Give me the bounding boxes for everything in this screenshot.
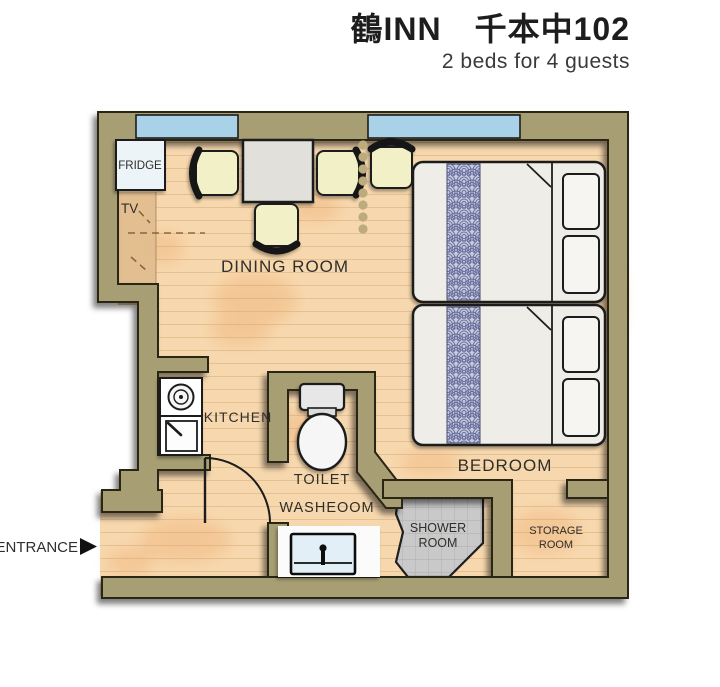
chair-bottom bbox=[255, 204, 298, 251]
chair-right bbox=[317, 150, 363, 195]
kitchen-label: KITCHEN bbox=[204, 409, 272, 425]
tv-label: TV bbox=[121, 201, 138, 216]
bedroom-label: BEDROOM bbox=[458, 456, 553, 475]
washroom-label: WASHEOOM bbox=[279, 500, 374, 516]
stove-burner bbox=[169, 385, 194, 410]
kitchen-counter bbox=[160, 378, 202, 455]
entrance-label: ENTRANCE bbox=[0, 539, 78, 556]
bed-2-pillow-bottom bbox=[563, 379, 599, 436]
window-dining bbox=[136, 115, 238, 138]
dining-room-label: DINING ROOM bbox=[221, 257, 349, 276]
shower-room-label-line1: SHOWER bbox=[410, 521, 466, 535]
dining-table bbox=[243, 140, 313, 202]
toilet-label: TOILET bbox=[294, 472, 351, 488]
bed-2-pillow-top bbox=[563, 317, 599, 372]
bed-2 bbox=[413, 305, 605, 445]
bed-1-runner bbox=[447, 164, 480, 300]
storage-room-label-line1: STORAGE bbox=[529, 525, 583, 537]
chair-bedside bbox=[371, 142, 412, 188]
window-bedroom bbox=[368, 115, 520, 138]
toilet-fixture bbox=[298, 384, 346, 470]
bed-1-pillow-top bbox=[563, 174, 599, 229]
bed-1 bbox=[413, 162, 605, 302]
storage-room-label-line2: ROOM bbox=[539, 539, 573, 551]
entrance-marker: ENTRANCE bbox=[0, 538, 97, 556]
bed-1-pillow-bottom bbox=[563, 236, 599, 293]
storage-top-wall bbox=[567, 480, 608, 498]
floor-plan: FRIDGE TV DINING ROOM BEDROOM KITCHEN TO… bbox=[0, 0, 720, 687]
chair-left bbox=[193, 150, 239, 196]
entrance-arrow-icon bbox=[80, 538, 97, 555]
bed-2-runner bbox=[447, 307, 480, 443]
shower-room-label-line2: ROOM bbox=[419, 536, 458, 550]
fridge-label: FRIDGE bbox=[118, 160, 162, 172]
kitchen-sink bbox=[166, 421, 197, 451]
washbasin bbox=[278, 526, 380, 577]
